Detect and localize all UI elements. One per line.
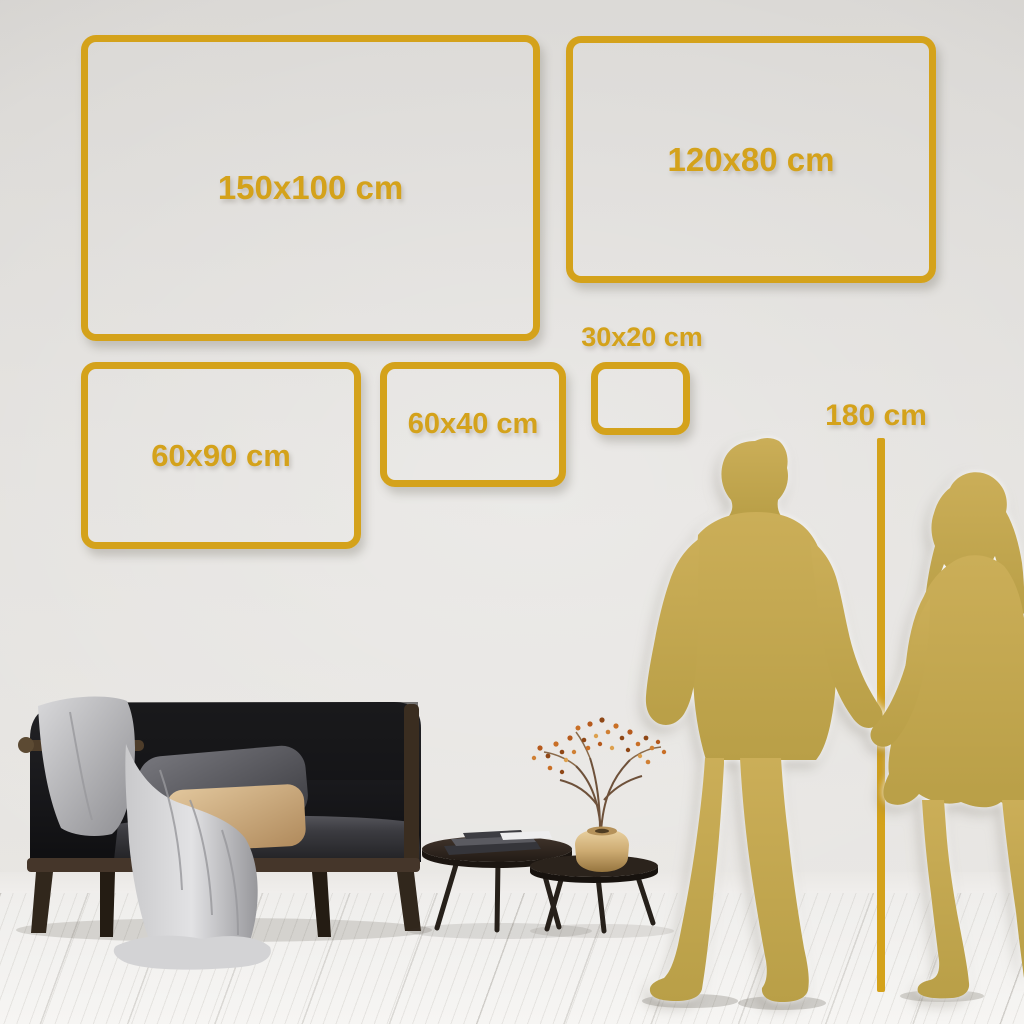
man-left-arm <box>646 538 700 725</box>
size-frame-label: 150x100 cm <box>218 169 403 207</box>
man-right-leg <box>740 758 809 1002</box>
branch-stem <box>590 758 600 830</box>
brass-vase <box>575 827 629 873</box>
woman-left-leg <box>918 800 970 998</box>
nesting-coffee-tables <box>408 830 674 939</box>
blanket-pool <box>114 936 271 970</box>
sofa-arm-peg <box>18 737 34 753</box>
size-frame-label: 60x90 cm <box>151 438 291 474</box>
branch-stem <box>576 766 601 832</box>
man-left-leg <box>650 758 724 1001</box>
branch-stem <box>601 760 630 832</box>
size-frame-150x100: 150x100 cm <box>81 35 540 341</box>
table-leg <box>598 877 604 931</box>
sofa-leg <box>397 872 421 931</box>
height-marker-label: 180 cm <box>806 399 946 433</box>
size-frame-120x80: 120x80 cm <box>566 36 936 283</box>
table-leg <box>497 861 498 930</box>
sofa-leg <box>100 872 115 937</box>
table-leg <box>437 858 458 928</box>
branch-twig <box>630 747 661 760</box>
size-frame-label: 60x40 cm <box>408 408 539 441</box>
couple-silhouette <box>646 438 1024 1002</box>
branch-berries <box>532 717 666 774</box>
woman-right-leg <box>1002 800 1024 978</box>
man-head <box>721 438 788 516</box>
woman-silhouette <box>871 472 1024 998</box>
man-silhouette <box>646 438 883 1002</box>
size-guide-scene: 150x100 cm 120x80 cm 60x90 cm 60x40 cm 3… <box>0 0 1024 1024</box>
size-frame-60x40: 60x40 cm <box>380 362 566 487</box>
vase-body <box>575 830 629 872</box>
sofa-right-post <box>404 704 419 864</box>
size-frame-30x20 <box>591 362 690 435</box>
branch-twig <box>576 732 590 758</box>
size-frame-label-30x20: 30x20 cm <box>576 322 708 353</box>
vase-hole <box>595 829 609 833</box>
size-frame-60x90: 60x90 cm <box>81 362 361 549</box>
dried-branch <box>532 717 666 832</box>
size-frame-label: 120x80 cm <box>668 141 835 179</box>
